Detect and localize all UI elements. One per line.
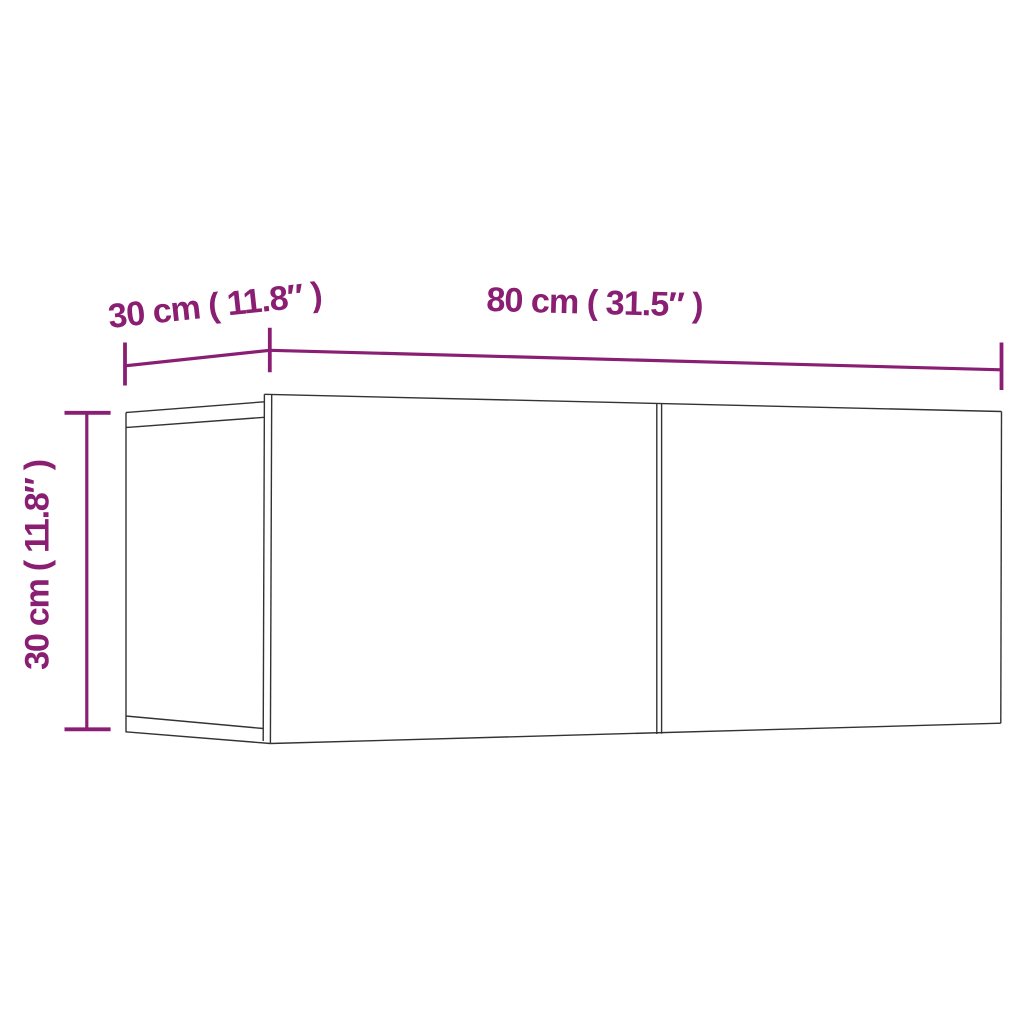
svg-text:30 cm ( 11.8″ ): 30 cm ( 11.8″ ) [19,460,57,670]
svg-text:80 cm ( 31.5″ ): 80 cm ( 31.5″ ) [486,281,703,325]
